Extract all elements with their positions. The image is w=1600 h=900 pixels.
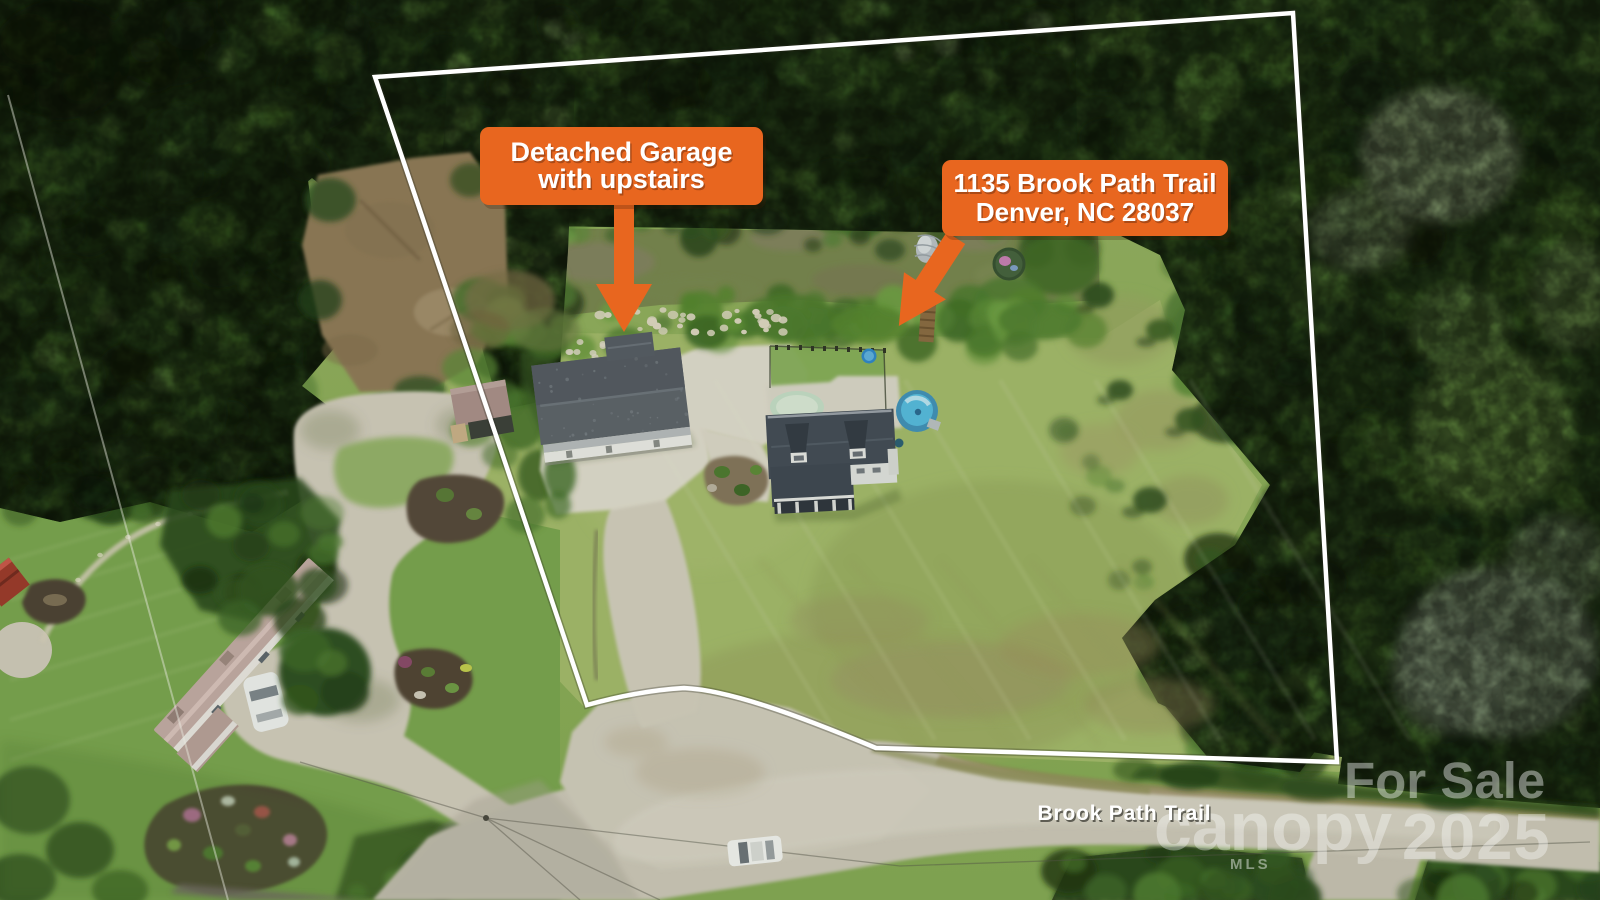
- svg-text:with upstairs: with upstairs: [537, 164, 705, 194]
- svg-text:1135 Brook Path Trail: 1135 Brook Path Trail: [953, 168, 1216, 198]
- svg-text:Denver, NC 28037: Denver, NC 28037: [976, 197, 1194, 227]
- svg-text:2025: 2025: [1402, 800, 1551, 873]
- svg-text:Brook Path Trail: Brook Path Trail: [1038, 802, 1212, 825]
- svg-text:MLS: MLS: [1230, 856, 1271, 873]
- svg-text:Detached Garage: Detached Garage: [510, 137, 732, 167]
- svg-text:canopy: canopy: [1154, 789, 1392, 865]
